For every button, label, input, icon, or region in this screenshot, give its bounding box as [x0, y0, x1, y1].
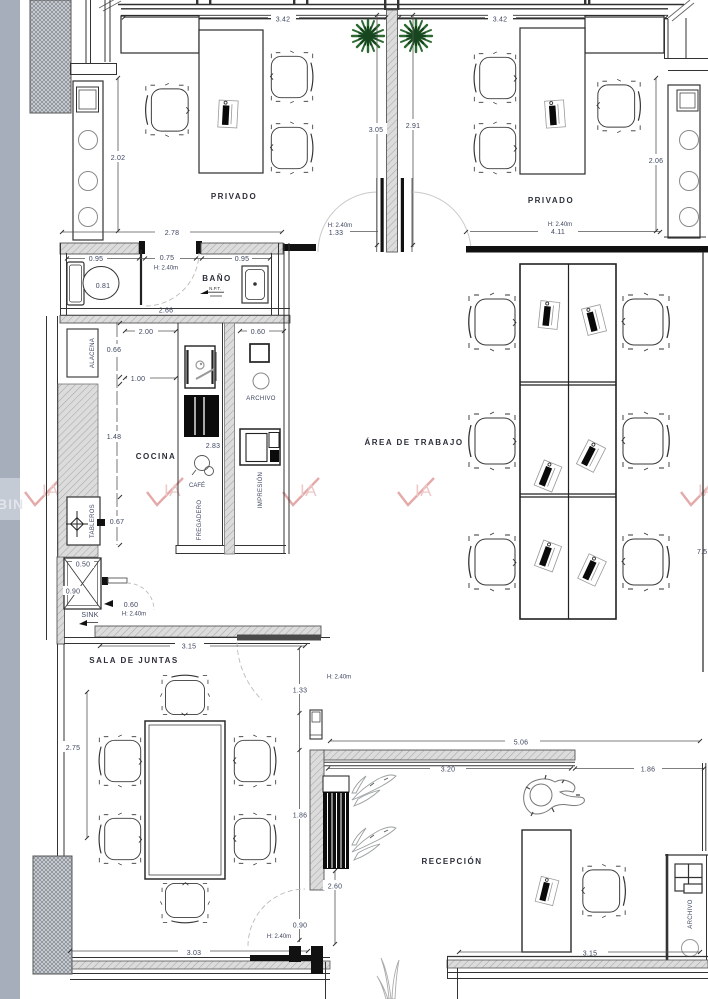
- svg-text:4.11: 4.11: [551, 229, 565, 236]
- svg-text:H: 2.40m: H: 2.40m: [267, 934, 291, 940]
- svg-text:2.78: 2.78: [165, 230, 179, 237]
- svg-text:RECEPCIÓN: RECEPCIÓN: [421, 857, 482, 866]
- svg-text:0.50: 0.50: [76, 562, 90, 569]
- svg-text:2.75: 2.75: [66, 745, 80, 752]
- svg-text:5.06: 5.06: [514, 740, 528, 747]
- svg-text:1.48: 1.48: [107, 434, 121, 441]
- svg-text:2.60: 2.60: [328, 884, 342, 891]
- svg-text:0.95: 0.95: [235, 256, 249, 263]
- svg-text:FREGADERO: FREGADERO: [197, 500, 203, 541]
- svg-text:7.5: 7.5: [697, 549, 707, 556]
- svg-text:0.90: 0.90: [66, 589, 80, 596]
- svg-text:H: 2.40m: H: 2.40m: [154, 266, 178, 272]
- svg-text:COCINA: COCINA: [136, 452, 177, 461]
- svg-text:ÁREA DE TRABAJO: ÁREA DE TRABAJO: [364, 438, 463, 447]
- svg-text:0.60: 0.60: [251, 329, 265, 336]
- svg-text:3.42: 3.42: [276, 17, 290, 24]
- svg-text:BAÑO: BAÑO: [202, 274, 232, 283]
- svg-text:2.66: 2.66: [159, 308, 173, 315]
- svg-text:3.03: 3.03: [187, 950, 201, 957]
- svg-text:0.81: 0.81: [96, 283, 110, 290]
- svg-text:1.86: 1.86: [293, 813, 307, 820]
- svg-text:H: 2.40m: H: 2.40m: [328, 223, 352, 229]
- svg-text:0.66: 0.66: [107, 347, 121, 354]
- svg-text:2.02: 2.02: [111, 155, 125, 162]
- svg-text:2.06: 2.06: [649, 158, 663, 165]
- svg-text:H: 2.40m: H: 2.40m: [327, 675, 351, 681]
- svg-text:ARCHIVO: ARCHIVO: [246, 396, 275, 402]
- svg-text:3.42: 3.42: [493, 17, 507, 24]
- svg-text:H: 2.40m: H: 2.40m: [548, 222, 572, 228]
- svg-text:1.86: 1.86: [641, 767, 655, 774]
- svg-text:CAFÉ: CAFÉ: [189, 482, 205, 489]
- svg-text:PRIVADO: PRIVADO: [528, 196, 574, 205]
- svg-text:N.P.T.: N.P.T.: [209, 286, 221, 291]
- svg-text:3.05: 3.05: [369, 127, 383, 134]
- svg-text:3.15: 3.15: [182, 644, 196, 651]
- svg-text:1.33: 1.33: [293, 688, 307, 695]
- svg-text:0.90: 0.90: [293, 923, 307, 930]
- svg-text:SINK: SINK: [81, 612, 98, 619]
- svg-text:0.75: 0.75: [160, 255, 174, 262]
- svg-text:0.67: 0.67: [110, 519, 124, 526]
- svg-text:IMPRESIÓN: IMPRESIÓN: [257, 472, 264, 508]
- svg-text:2.00: 2.00: [139, 329, 153, 336]
- svg-text:3.20: 3.20: [441, 767, 455, 774]
- svg-text:2.91: 2.91: [406, 123, 420, 130]
- svg-text:BIN: BIN: [0, 496, 24, 512]
- svg-text:SALA DE JUNTAS: SALA DE JUNTAS: [89, 656, 178, 665]
- svg-text:2.83: 2.83: [206, 443, 220, 450]
- svg-text:1.00: 1.00: [131, 376, 145, 383]
- svg-text:0.95: 0.95: [89, 256, 103, 263]
- svg-text:TABLEROS: TABLEROS: [90, 504, 96, 538]
- svg-text:H: 2.40m: H: 2.40m: [122, 612, 146, 618]
- svg-text:ARCHIVO: ARCHIVO: [688, 899, 694, 928]
- svg-text:PRIVADO: PRIVADO: [211, 192, 257, 201]
- svg-text:0.60: 0.60: [124, 602, 138, 609]
- svg-text:1.33: 1.33: [329, 230, 343, 237]
- svg-text:ALACENA: ALACENA: [90, 338, 96, 368]
